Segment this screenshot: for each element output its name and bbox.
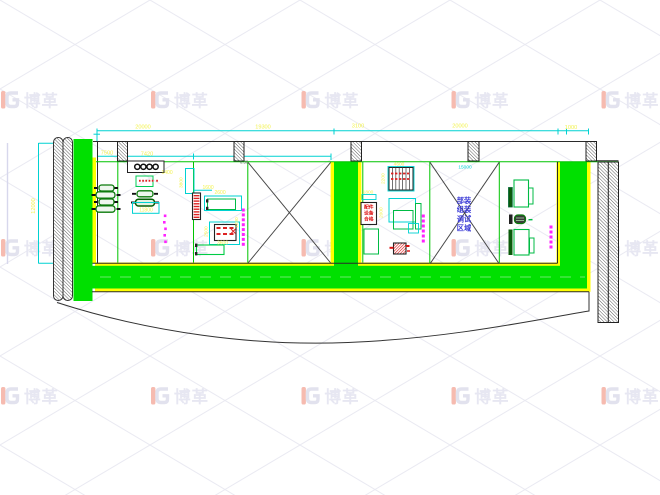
- svg-text:3800: 3800: [179, 177, 185, 188]
- svg-text:1000: 1000: [565, 125, 577, 131]
- svg-text:4600: 4600: [394, 162, 405, 168]
- svg-text:1200: 1200: [234, 217, 240, 228]
- svg-text:19300: 19300: [255, 125, 271, 131]
- svg-text:7500: 7500: [101, 151, 113, 157]
- svg-text:组装: 组装: [457, 205, 472, 214]
- svg-text:20000: 20000: [452, 124, 468, 130]
- svg-text:7420: 7420: [141, 152, 153, 158]
- svg-text:2600: 2600: [215, 190, 226, 196]
- svg-text:区域: 区域: [457, 224, 472, 233]
- svg-text:3100: 3100: [352, 124, 364, 130]
- svg-text:合格: 合格: [364, 216, 374, 223]
- svg-text:2200: 2200: [381, 173, 387, 184]
- svg-text:15000: 15000: [458, 165, 472, 171]
- svg-text:设备: 设备: [364, 210, 374, 217]
- svg-text:12000: 12000: [31, 198, 37, 214]
- svg-text:1600: 1600: [203, 185, 214, 191]
- svg-text:1400: 1400: [162, 170, 173, 176]
- svg-text:11800: 11800: [139, 208, 153, 214]
- svg-text:2500: 2500: [204, 226, 210, 237]
- svg-text:调试: 调试: [457, 215, 472, 224]
- svg-text:1800: 1800: [363, 190, 374, 196]
- svg-text:0.30: 0.30: [240, 160, 249, 165]
- svg-text:部装: 部装: [457, 196, 472, 205]
- svg-text:20000: 20000: [135, 125, 151, 131]
- svg-text:配件: 配件: [364, 204, 374, 211]
- svg-text:2000: 2000: [379, 207, 385, 218]
